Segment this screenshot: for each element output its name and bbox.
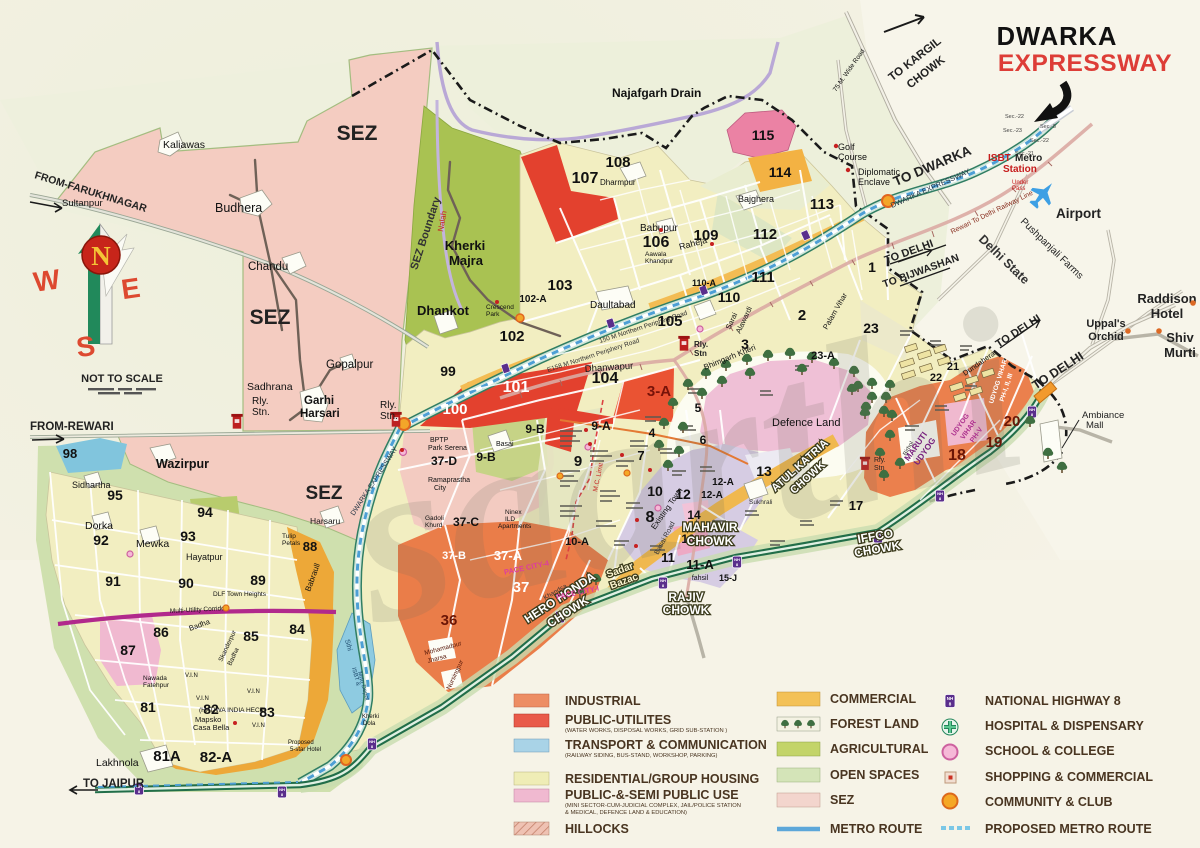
- svg-text:3: 3: [741, 336, 749, 352]
- svg-text:Daultabad: Daultabad: [590, 300, 636, 311]
- svg-text:12-A: 12-A: [701, 490, 723, 501]
- svg-text:CHOWK: CHOWK: [663, 603, 710, 617]
- svg-text:83: 83: [259, 704, 275, 720]
- svg-text:Sec.-23: Sec.-23: [1003, 128, 1022, 134]
- svg-text:City: City: [434, 485, 447, 492]
- svg-text:12-A: 12-A: [712, 477, 734, 488]
- svg-text:Rly.: Rly.: [380, 400, 396, 411]
- svg-text:Stn.: Stn.: [380, 411, 398, 422]
- svg-text:37: 37: [513, 579, 530, 596]
- svg-text:Crescend: Crescend: [486, 304, 514, 311]
- svg-text:Basai: Basai: [496, 441, 514, 448]
- svg-text:94: 94: [197, 504, 213, 520]
- svg-text:COMMERCIAL: COMMERCIAL: [830, 692, 916, 706]
- svg-text:Station: Station: [1003, 164, 1037, 175]
- svg-text:6: 6: [700, 433, 707, 447]
- svg-text:17: 17: [849, 498, 863, 513]
- svg-text:(MINI SECTOR-CUM-JUDICIAL COMP: (MINI SECTOR-CUM-JUDICIAL COMPLEX, JAIL/…: [565, 803, 741, 809]
- svg-text:Course: Course: [838, 152, 867, 162]
- svg-text:Dorka: Dorka: [85, 520, 113, 532]
- svg-text:V.I.N: V.I.N: [252, 723, 265, 729]
- svg-text:13: 13: [756, 463, 772, 479]
- svg-text:102: 102: [499, 328, 524, 345]
- svg-text:37-B: 37-B: [442, 550, 466, 562]
- svg-text:Ninex: Ninex: [505, 509, 522, 516]
- svg-text:Sec.-22: Sec.-22: [1030, 138, 1049, 144]
- svg-text:V.I.N: V.I.N: [247, 689, 260, 695]
- svg-text:DWARKA: DWARKA: [997, 23, 1118, 51]
- svg-text:Enclave: Enclave: [858, 177, 890, 187]
- svg-text:COMMUNITY & CLUB: COMMUNITY & CLUB: [985, 795, 1113, 809]
- svg-text:Nawada: Nawada: [143, 675, 167, 682]
- svg-text:fahsil: fahsil: [692, 575, 709, 582]
- svg-text:110: 110: [718, 289, 741, 305]
- svg-text:HOSPITAL & DISPENSARY: HOSPITAL & DISPENSARY: [985, 719, 1144, 733]
- svg-text:Aawala: Aawala: [645, 251, 667, 258]
- svg-text:ILD: ILD: [505, 516, 515, 523]
- svg-text:Park Serena: Park Serena: [428, 445, 467, 452]
- svg-text:& MEDICAL, DEFENCE LAND & EDUC: & MEDICAL, DEFENCE LAND & EDUCATION): [565, 810, 687, 816]
- svg-text:88: 88: [303, 539, 317, 554]
- svg-text:1: 1: [868, 259, 876, 275]
- svg-text:81A: 81A: [153, 748, 181, 765]
- svg-text:115: 115: [752, 127, 775, 143]
- svg-text:Rly.: Rly.: [252, 396, 268, 407]
- svg-text:Sidhartha: Sidhartha: [72, 480, 111, 490]
- svg-text:AGRICULTURAL: AGRICULTURAL: [830, 742, 929, 756]
- svg-text:SEZ: SEZ: [306, 483, 343, 504]
- svg-text:9-B: 9-B: [525, 422, 545, 436]
- svg-text:Airport: Airport: [1056, 206, 1102, 221]
- svg-text:85: 85: [243, 628, 259, 644]
- svg-text:Dola: Dola: [363, 721, 376, 727]
- svg-text:18: 18: [948, 447, 966, 464]
- svg-text:NATIONAL HIGHWAY 8: NATIONAL HIGHWAY 8: [985, 694, 1121, 708]
- svg-text:Garhi: Garhi: [304, 395, 334, 407]
- svg-text:22: 22: [930, 372, 942, 384]
- svg-text:4: 4: [649, 426, 656, 440]
- svg-text:107: 107: [572, 170, 599, 187]
- svg-text:EXPRESSWAY: EXPRESSWAY: [998, 50, 1172, 77]
- svg-text:37-D: 37-D: [431, 454, 457, 468]
- svg-text:FROM-REWARI: FROM-REWARI: [30, 421, 114, 433]
- svg-text:Sec.-22: Sec.-22: [1005, 114, 1024, 120]
- svg-text:Casa Bella: Casa Bella: [193, 723, 230, 732]
- svg-text:95: 95: [107, 487, 123, 503]
- svg-text:12: 12: [675, 486, 691, 502]
- svg-text:23: 23: [863, 320, 879, 336]
- svg-text:Murti: Murti: [1164, 345, 1196, 360]
- svg-text:113: 113: [810, 196, 834, 213]
- svg-text:9-B: 9-B: [476, 450, 496, 464]
- svg-text:86: 86: [153, 624, 169, 640]
- svg-text:Shiv: Shiv: [1166, 330, 1194, 345]
- svg-text:91: 91: [105, 573, 121, 589]
- svg-text:Fatehpur: Fatehpur: [143, 682, 170, 689]
- svg-text:DLF Town Heights: DLF Town Heights: [213, 591, 267, 598]
- svg-text:92: 92: [93, 532, 109, 548]
- svg-text:METRO ROUTE: METRO ROUTE: [830, 822, 922, 836]
- svg-text:10: 10: [647, 483, 663, 499]
- svg-text:Metro: Metro: [1015, 153, 1042, 164]
- svg-text:114: 114: [769, 164, 792, 180]
- svg-text:Hotel: Hotel: [1151, 306, 1184, 321]
- svg-text:Pass: Pass: [1012, 186, 1025, 192]
- svg-text:Gadoli: Gadoli: [425, 515, 444, 522]
- svg-text:Defence Land: Defence Land: [772, 417, 841, 429]
- svg-text:BPTP: BPTP: [430, 437, 449, 444]
- svg-text:Mall: Mall: [1086, 420, 1103, 431]
- svg-text:Harsari: Harsari: [300, 408, 340, 420]
- svg-text:37-A: 37-A: [494, 548, 523, 563]
- svg-text:PUBLIC-UTILITES: PUBLIC-UTILITES: [565, 713, 671, 727]
- svg-text:Chandu: Chandu: [248, 261, 288, 273]
- svg-text:93: 93: [180, 528, 196, 544]
- svg-text:2: 2: [798, 307, 806, 324]
- svg-text:Harsaru: Harsaru: [310, 516, 341, 526]
- svg-text:Khandpur: Khandpur: [645, 258, 674, 265]
- svg-text:Mewka: Mewka: [136, 538, 169, 550]
- svg-text:Kaliawas: Kaliawas: [163, 139, 205, 151]
- svg-text:CHOWK: CHOWK: [687, 534, 734, 548]
- svg-text:Dhankot: Dhankot: [417, 303, 470, 318]
- svg-text:109: 109: [693, 227, 718, 244]
- svg-text:87: 87: [120, 642, 136, 658]
- svg-text:110-A: 110-A: [692, 278, 717, 288]
- svg-text:Stn: Stn: [874, 465, 885, 472]
- svg-text:TRANSPORT & COMMUNICATION: TRANSPORT & COMMUNICATION: [565, 738, 767, 752]
- svg-text:Park: Park: [486, 311, 500, 318]
- svg-text:11-A: 11-A: [686, 557, 714, 572]
- svg-text:111: 111: [751, 269, 774, 286]
- svg-text:Orchid: Orchid: [1088, 331, 1123, 343]
- svg-text:Sultanpur: Sultanpur: [62, 198, 103, 209]
- svg-text:104: 104: [592, 370, 619, 387]
- svg-text:INDUSTRIAL: INDUSTRIAL: [565, 694, 641, 708]
- svg-text:82: 82: [203, 701, 219, 717]
- svg-text:Sadhrana: Sadhrana: [247, 381, 293, 393]
- svg-text:100: 100: [442, 401, 467, 418]
- svg-text:99: 99: [440, 363, 456, 379]
- svg-text:98: 98: [63, 446, 77, 461]
- svg-text:Uppal's: Uppal's: [1086, 318, 1125, 330]
- svg-text:5: 5: [695, 401, 702, 415]
- svg-text:NOT TO SCALE: NOT TO SCALE: [81, 373, 163, 385]
- svg-text:89: 89: [250, 572, 266, 588]
- svg-text:Stn.: Stn.: [252, 407, 270, 418]
- svg-text:19: 19: [986, 434, 1003, 451]
- svg-text:Budhera: Budhera: [215, 201, 262, 215]
- svg-text:Sukhrali: Sukhrali: [749, 499, 772, 506]
- svg-text:106: 106: [643, 234, 670, 251]
- svg-text:Diplomatic: Diplomatic: [858, 167, 901, 177]
- svg-text:15-J: 15-J: [719, 573, 737, 583]
- svg-text:7: 7: [637, 448, 644, 463]
- svg-text:SHOPPING & COMMERCIAL: SHOPPING & COMMERCIAL: [985, 770, 1153, 784]
- svg-text:RESIDENTIAL/GROUP HOUSING: RESIDENTIAL/GROUP HOUSING: [565, 772, 759, 786]
- svg-text:FOREST LAND: FOREST LAND: [830, 717, 919, 731]
- svg-text:OPEN SPACES: OPEN SPACES: [830, 768, 919, 782]
- svg-text:103: 103: [547, 277, 572, 294]
- svg-text:W: W: [31, 263, 62, 297]
- svg-text:SEZ: SEZ: [250, 306, 291, 329]
- svg-text:81: 81: [140, 699, 156, 715]
- svg-text:Rly.: Rly.: [694, 340, 708, 349]
- svg-text:RAJIV: RAJIV: [668, 590, 703, 604]
- svg-text:8: 8: [646, 509, 655, 526]
- svg-text:PUBLIC-&-SEMI PUBLIC USE: PUBLIC-&-SEMI PUBLIC USE: [565, 788, 739, 802]
- svg-text:(WATER WORKS, DISPOSAL WORKS,: (WATER WORKS, DISPOSAL WORKS, GRID SUB-S…: [565, 728, 727, 734]
- svg-text:Majra: Majra: [449, 253, 484, 268]
- svg-text:Ramaprastha: Ramaprastha: [428, 477, 470, 484]
- svg-text:Wazirpur: Wazirpur: [156, 457, 209, 471]
- svg-text:N: N: [91, 241, 111, 271]
- svg-text:82-A: 82-A: [200, 749, 233, 766]
- svg-text:(RAILWAY SIDING, BUS-STAND, WO: (RAILWAY SIDING, BUS-STAND, WORKSHOP, PA…: [565, 753, 718, 759]
- svg-text:Kherki: Kherki: [445, 238, 485, 253]
- svg-text:Dharmpur: Dharmpur: [600, 178, 636, 187]
- svg-text:Apartments: Apartments: [498, 523, 532, 530]
- svg-text:Kherki: Kherki: [362, 714, 379, 720]
- svg-text:112: 112: [753, 226, 777, 243]
- svg-text:SCHOOL & COLLEGE: SCHOOL & COLLEGE: [985, 744, 1115, 758]
- svg-text:Golf: Golf: [838, 142, 855, 152]
- svg-text:Sec.-8: Sec.-8: [1040, 124, 1056, 130]
- svg-text:Lakhnola: Lakhnola: [96, 757, 139, 769]
- svg-text:108: 108: [605, 154, 630, 171]
- svg-text:23-A: 23-A: [811, 350, 835, 362]
- svg-text:Gopalpur: Gopalpur: [326, 359, 373, 371]
- svg-text:11: 11: [661, 550, 675, 565]
- svg-text:20: 20: [1004, 413, 1021, 430]
- svg-text:9: 9: [574, 453, 582, 470]
- svg-text:84: 84: [289, 621, 305, 637]
- svg-text:SEZ: SEZ: [830, 793, 855, 807]
- svg-text:90: 90: [178, 575, 194, 591]
- svg-text:TO JAIPUR: TO JAIPUR: [83, 778, 145, 790]
- svg-text:HILLOCKS: HILLOCKS: [565, 822, 629, 836]
- svg-text:5-star Hotel: 5-star Hotel: [290, 747, 321, 753]
- svg-text:Rly.: Rly.: [874, 457, 886, 464]
- svg-text:Stn: Stn: [694, 349, 707, 358]
- svg-text:ISBT: ISBT: [988, 153, 1011, 164]
- svg-text:Tulip: Tulip: [282, 533, 296, 540]
- svg-text:Najafgarh Drain: Najafgarh Drain: [612, 86, 701, 100]
- svg-text:102-A: 102-A: [519, 294, 546, 305]
- svg-text:Petals: Petals: [282, 540, 301, 547]
- svg-text:9-A: 9-A: [591, 419, 611, 433]
- svg-text:10-A: 10-A: [565, 536, 589, 548]
- svg-text:Bajghera: Bajghera: [738, 194, 774, 204]
- svg-text:101: 101: [503, 379, 530, 396]
- svg-text:Hayatpur: Hayatpur: [186, 552, 223, 562]
- svg-text:MAHAVIR: MAHAVIR: [682, 520, 737, 534]
- svg-text:PROPOSED METRO ROUTE: PROPOSED METRO ROUTE: [985, 822, 1152, 836]
- svg-text:36: 36: [441, 612, 458, 629]
- svg-text:Proposed: Proposed: [288, 740, 314, 746]
- svg-text:Raddison: Raddison: [1137, 291, 1196, 306]
- svg-text:SEZ: SEZ: [337, 122, 378, 145]
- svg-text:Babupur: Babupur: [640, 223, 678, 234]
- svg-text:Khurd: Khurd: [425, 522, 443, 529]
- svg-text:37-C: 37-C: [453, 515, 479, 529]
- svg-text:V.I.N: V.I.N: [185, 673, 198, 679]
- svg-text:3-A: 3-A: [647, 383, 671, 400]
